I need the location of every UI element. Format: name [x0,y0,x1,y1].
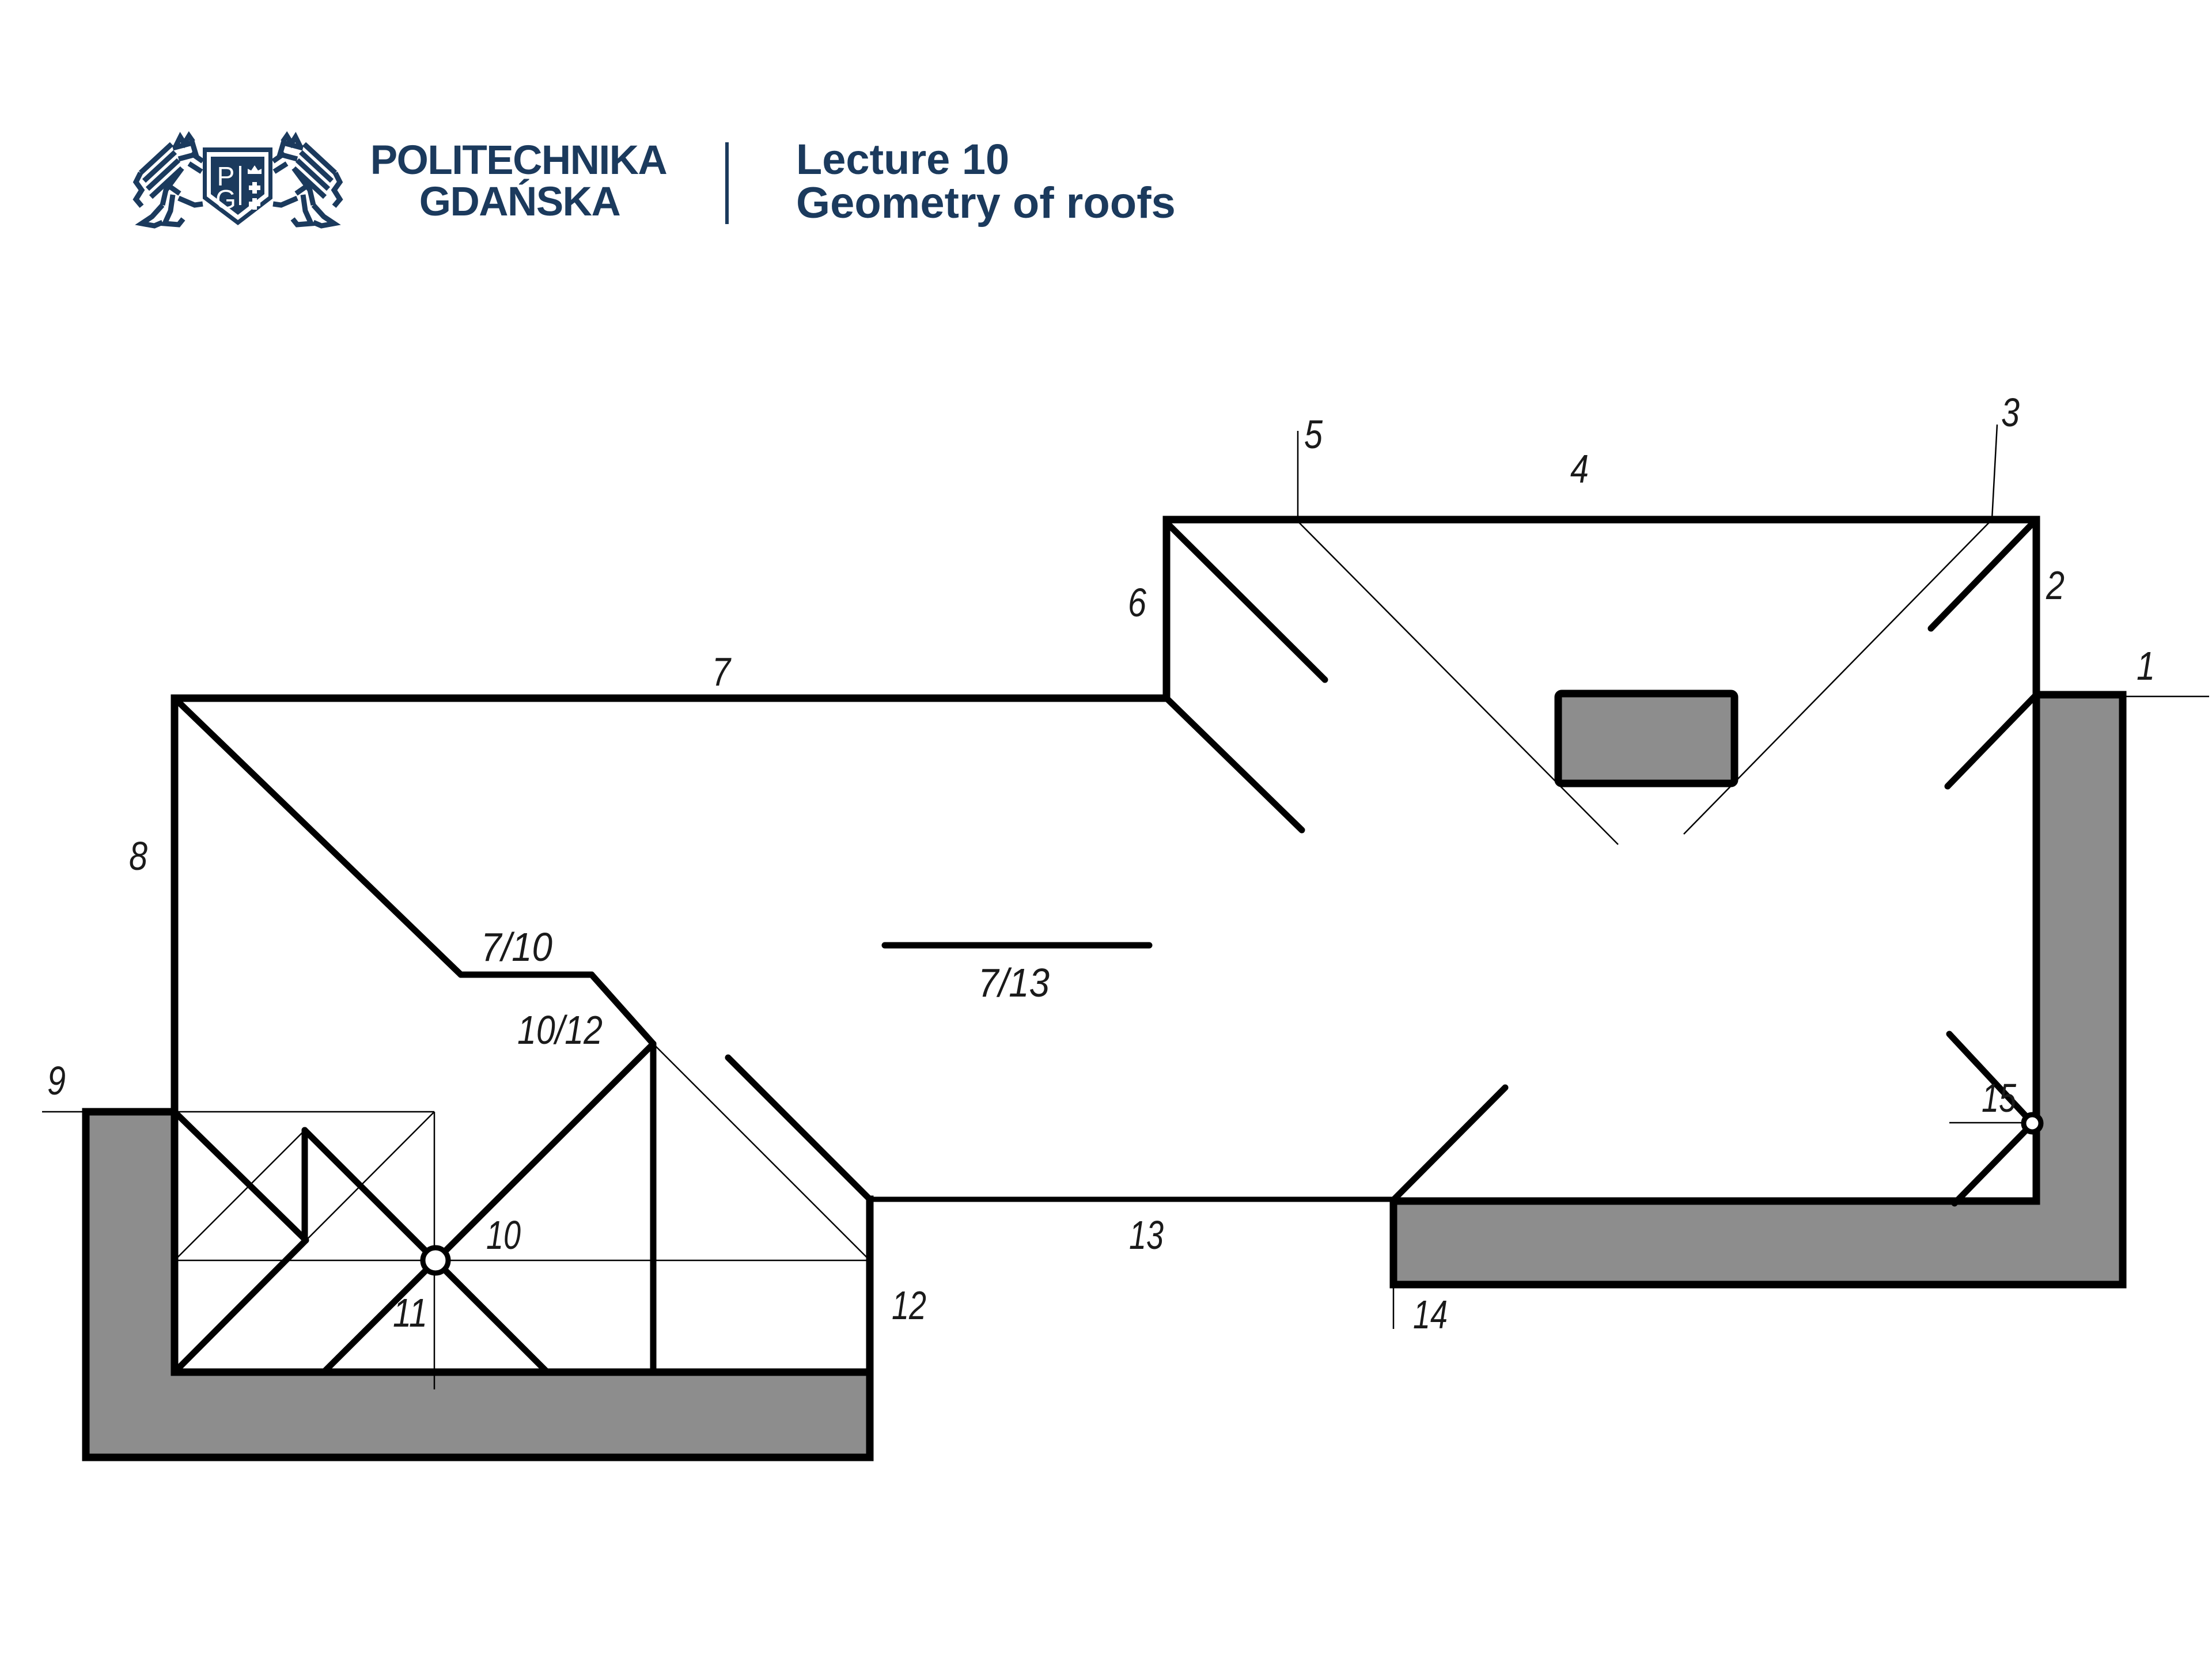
svg-text:7/10: 7/10 [481,925,552,969]
svg-text:G: G [215,184,236,214]
svg-text:14: 14 [1413,1292,1448,1337]
svg-text:13: 13 [1129,1213,1164,1257]
svg-text:POLITECHNIKA: POLITECHNIKA [370,138,667,183]
svg-text:6: 6 [1128,580,1146,625]
svg-text:10/12: 10/12 [517,1007,603,1052]
svg-text:1: 1 [2137,643,2155,688]
svg-text:3: 3 [2001,390,2020,435]
svg-text:9: 9 [47,1058,66,1103]
svg-text:12: 12 [892,1283,926,1328]
svg-text:11: 11 [393,1290,427,1335]
svg-text:GDAŃSKA: GDAŃSKA [419,179,620,225]
svg-text:7: 7 [712,649,732,694]
svg-text:Geometry of roofs: Geometry of roofs [796,179,1176,228]
svg-text:10: 10 [486,1213,521,1257]
svg-text:7/13: 7/13 [978,960,1050,1005]
svg-text:4: 4 [1570,446,1589,491]
svg-text:2: 2 [2046,563,2065,608]
svg-text:Lecture 10: Lecture 10 [796,135,1009,183]
svg-text:15: 15 [1982,1075,2017,1120]
svg-text:5: 5 [1304,412,1323,457]
svg-text:8: 8 [129,834,147,878]
